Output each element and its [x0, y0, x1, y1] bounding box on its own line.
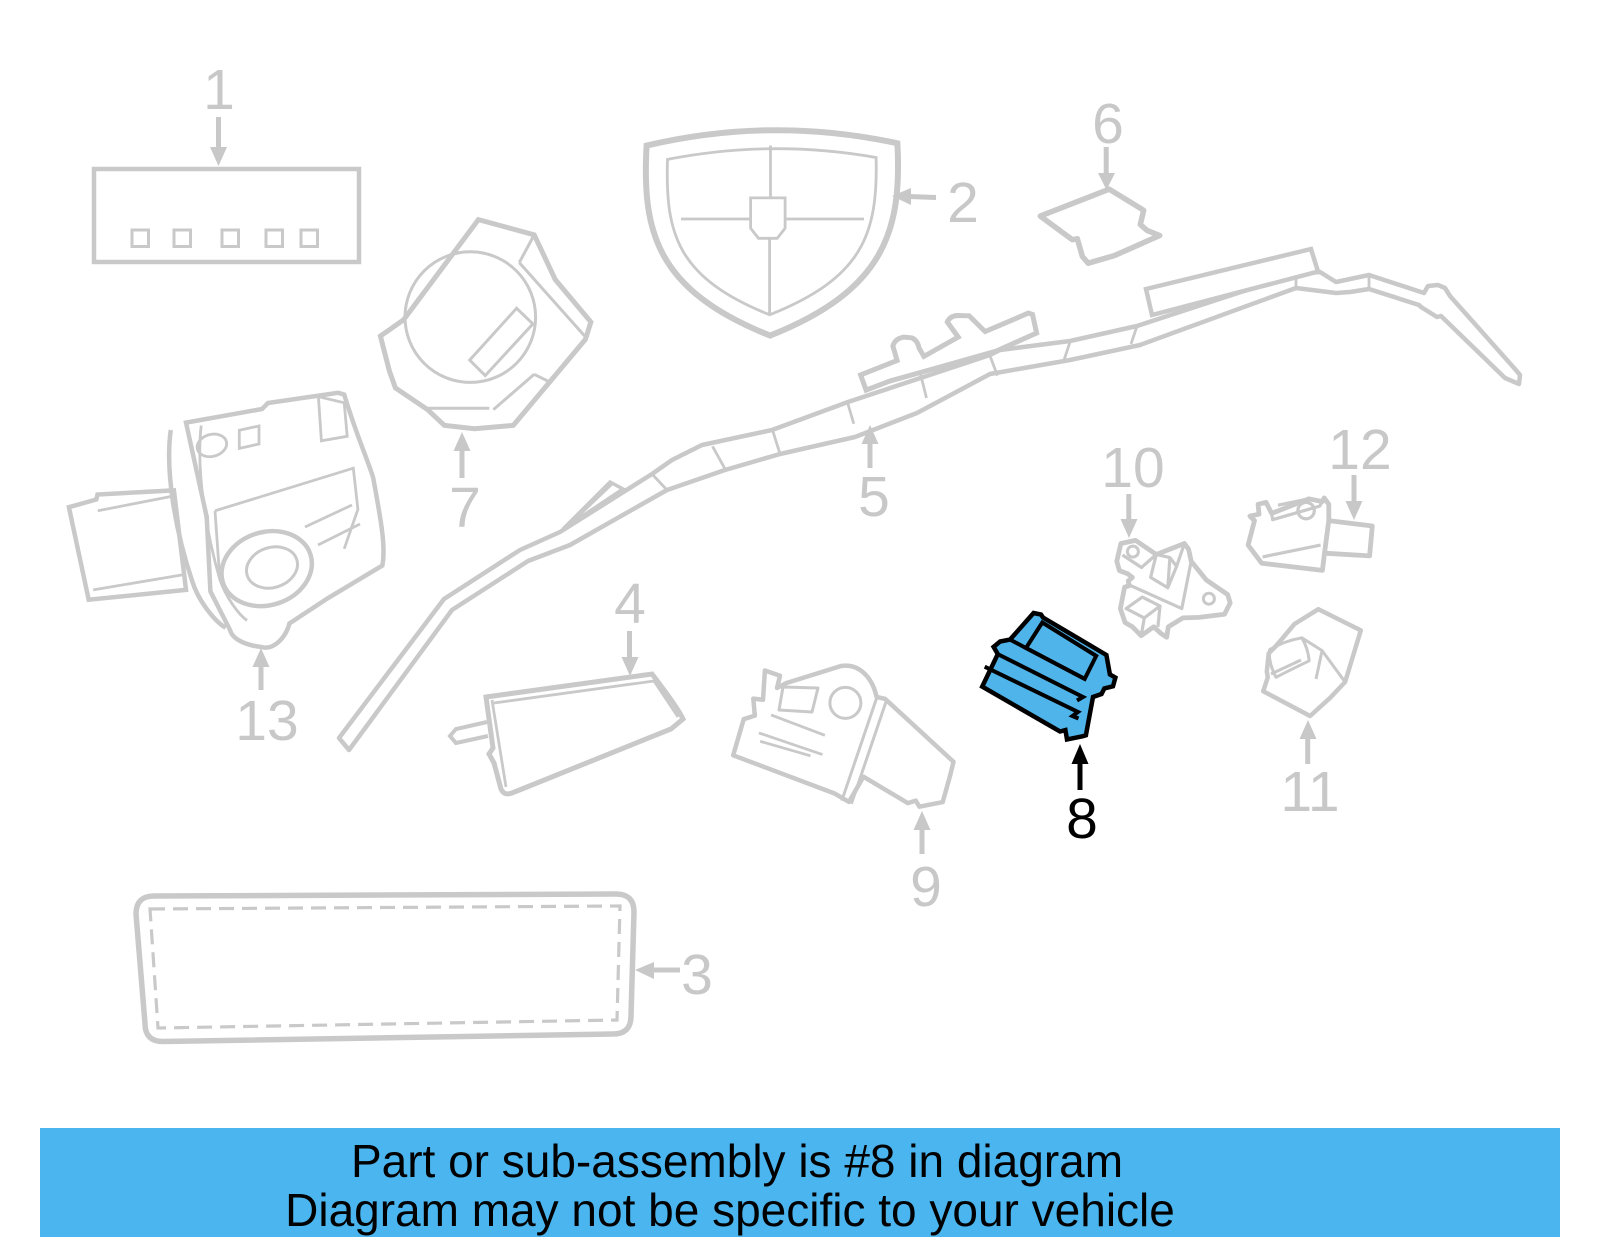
svg-text:3: 3	[681, 943, 713, 1007]
svg-text:7: 7	[449, 476, 481, 540]
svg-text:13: 13	[235, 689, 298, 753]
svg-text:6: 6	[1092, 92, 1124, 156]
svg-text:2: 2	[947, 171, 979, 235]
svg-text:12: 12	[1328, 418, 1391, 482]
svg-text:Diagram may not be specific to: Diagram may not be specific to your vehi…	[285, 1184, 1175, 1236]
svg-text:5: 5	[858, 465, 890, 529]
svg-text:9: 9	[910, 855, 942, 919]
svg-text:Part or sub-assembly is #8 in: Part or sub-assembly is #8 in diagram	[351, 1135, 1123, 1187]
svg-text:8: 8	[1066, 787, 1098, 851]
svg-text:4: 4	[614, 572, 646, 636]
svg-text:11: 11	[1280, 760, 1339, 824]
svg-text:1: 1	[203, 58, 235, 122]
svg-text:10: 10	[1101, 436, 1164, 500]
